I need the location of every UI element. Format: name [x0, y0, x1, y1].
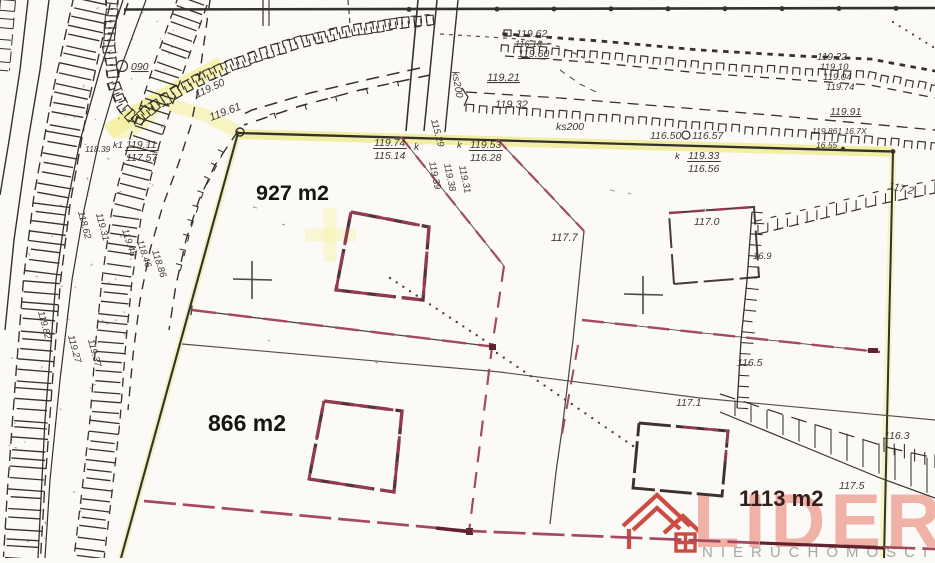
svg-text:116.5: 116.5	[737, 357, 763, 369]
svg-text:119.60: 119.60	[518, 48, 549, 60]
svg-text:117.5: 117.5	[839, 480, 865, 492]
svg-text:119.33: 119.33	[688, 150, 719, 162]
svg-text:116.3: 116.3	[884, 430, 910, 442]
svg-text:116.50: 116.50	[650, 130, 681, 142]
svg-text:117.7: 117.7	[551, 232, 579, 244]
svg-text:115.14: 115.14	[374, 150, 405, 162]
svg-text:119.91: 119.91	[830, 106, 861, 118]
svg-text:119.21: 119.21	[487, 72, 520, 84]
svg-text:119.11: 119.11	[126, 139, 157, 151]
svg-text:ks200: ks200	[556, 121, 584, 133]
svg-text:118.39: 118.39	[85, 144, 111, 154]
svg-text:119.74: 119.74	[826, 82, 854, 93]
svg-text:117.57: 117.57	[126, 152, 158, 164]
svg-text:119.861 16.7X: 119.861 16.7X	[812, 126, 867, 136]
svg-text:16.9: 16.9	[753, 251, 772, 262]
svg-text:090: 090	[131, 61, 149, 73]
svg-text:117.0: 117.0	[694, 216, 720, 228]
svg-text:119.32: 119.32	[495, 99, 528, 111]
svg-text:927 m2: 927 m2	[256, 181, 329, 205]
svg-text:866 m2: 866 m2	[208, 410, 286, 436]
svg-text:116.57: 116.57	[692, 130, 724, 142]
svg-text:1113 m2: 1113 m2	[739, 486, 823, 511]
svg-text:16.55: 16.55	[816, 140, 838, 150]
svg-text:119.53: 119.53	[470, 139, 501, 151]
svg-text:116.56: 116.56	[688, 163, 719, 175]
svg-text:116.28: 116.28	[470, 152, 501, 164]
svg-text:117.1: 117.1	[676, 397, 702, 409]
svg-text:119.74: 119.74	[374, 137, 405, 149]
svg-text:k1: k1	[113, 140, 123, 151]
